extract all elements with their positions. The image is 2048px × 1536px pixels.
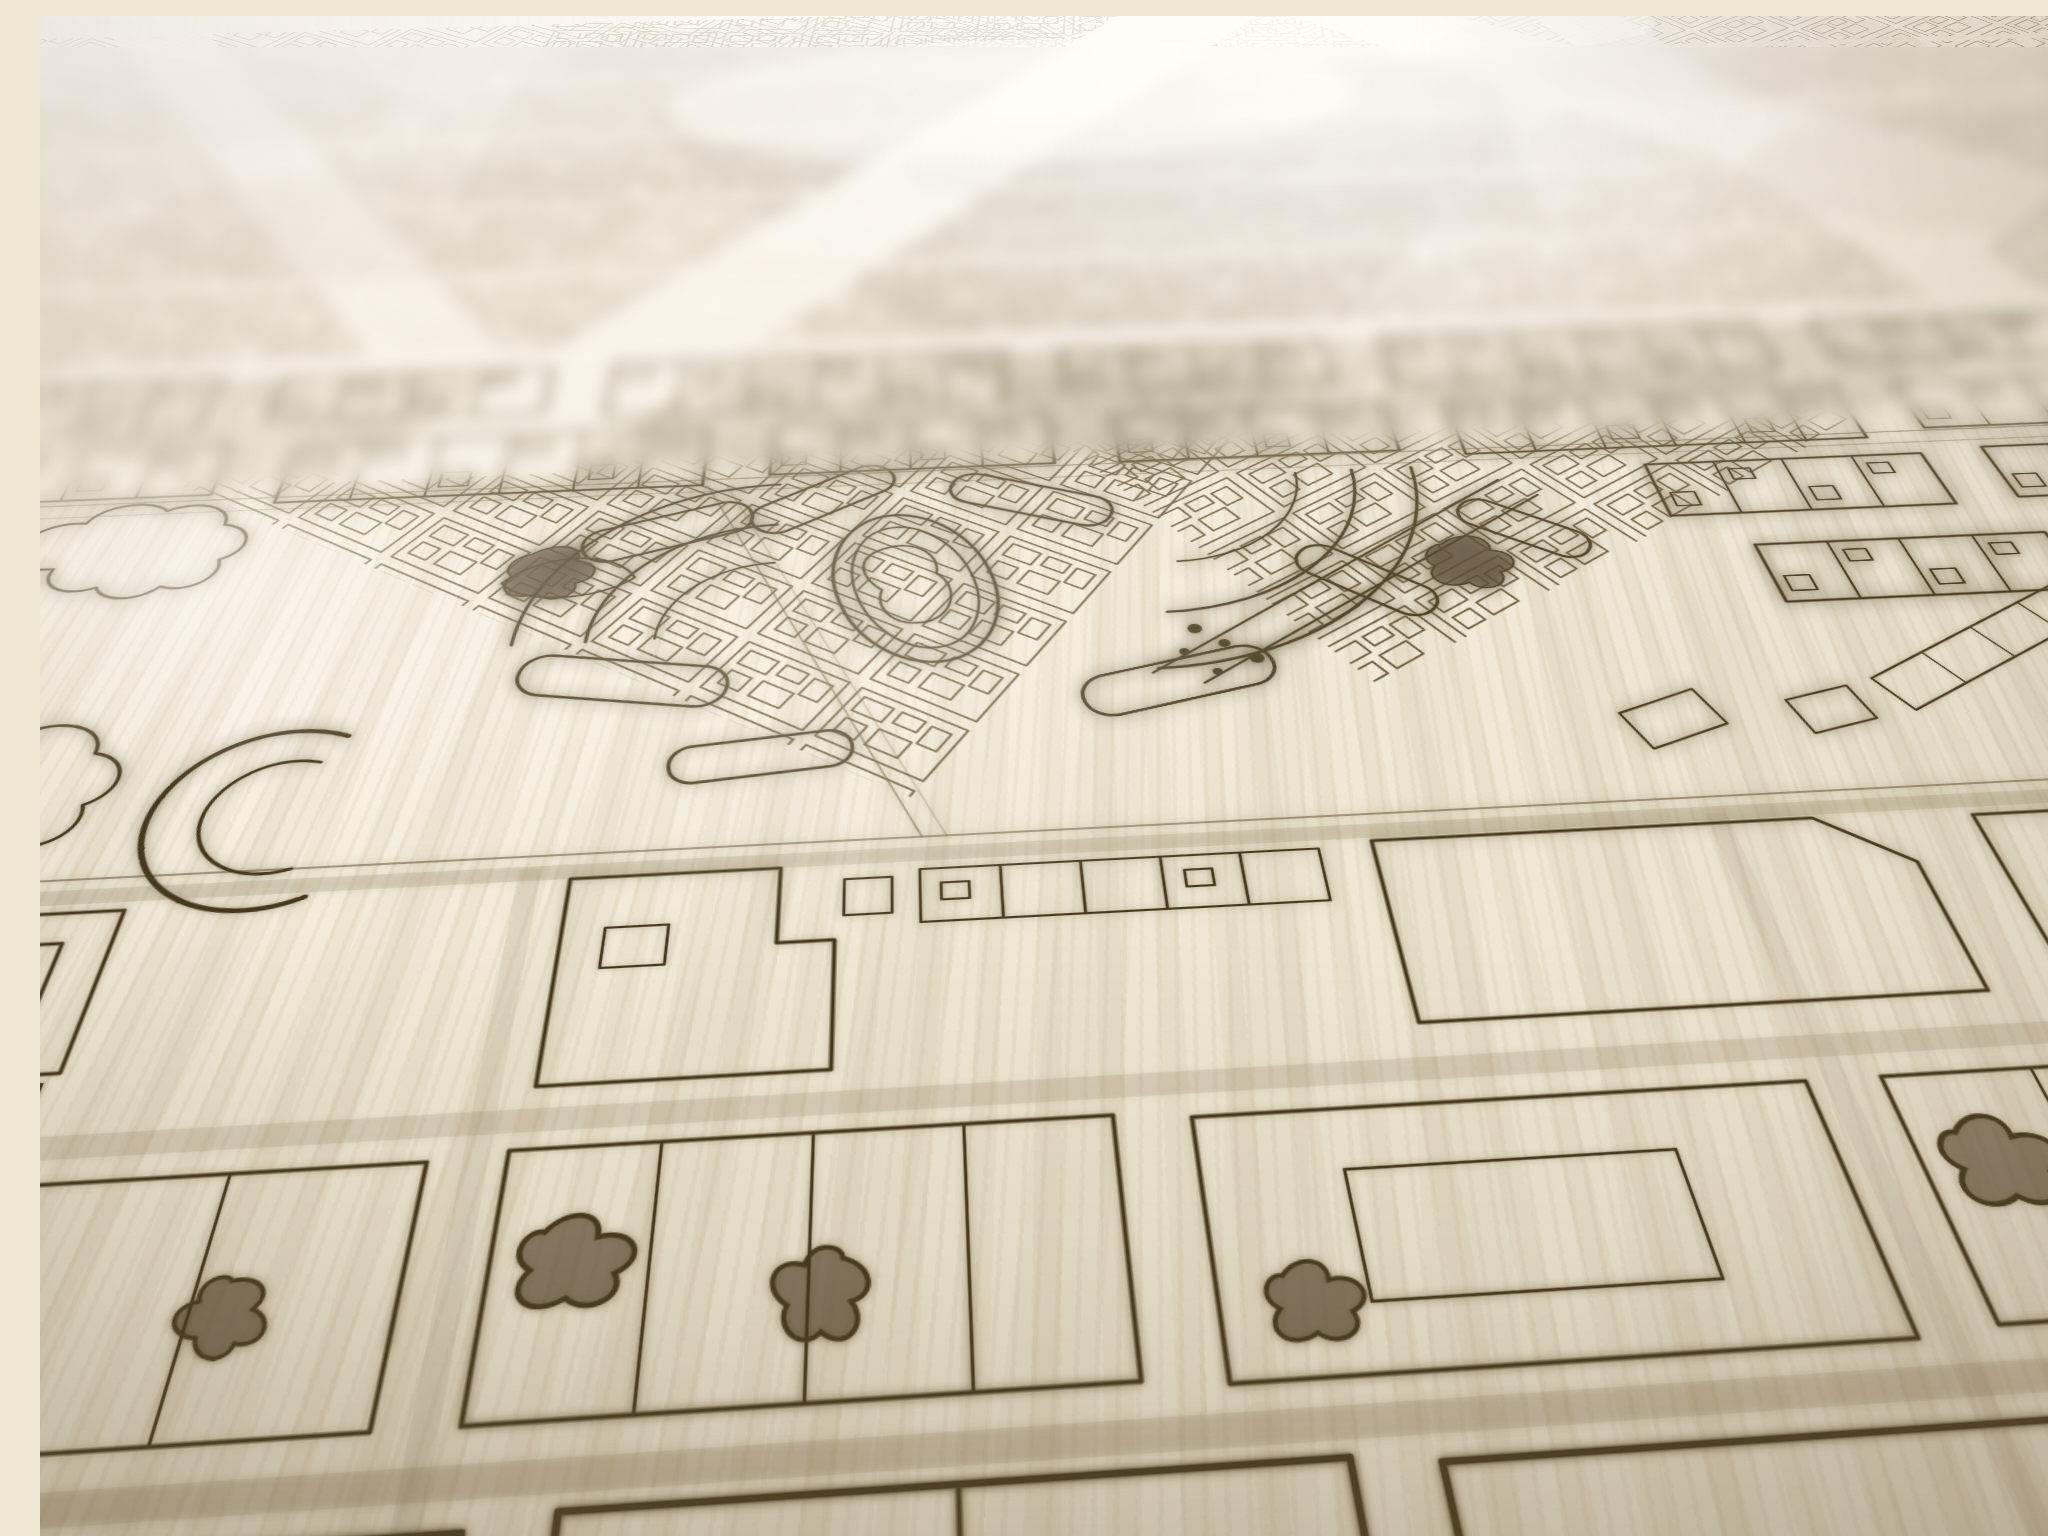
city-block-rows-near [40,743,2048,1536]
engraved-city-map [40,16,2048,1536]
scene-layer-sharp [40,16,2048,1536]
wood-map-plane [40,16,2048,1536]
far-city-district [40,16,2048,928]
bandstand-nested-squares [40,910,125,1143]
photo-engraved-wood-map [40,16,2048,1536]
trapezoid-block [1372,814,1988,1023]
notched-block [536,865,837,1086]
park-ponds [40,493,428,1173]
